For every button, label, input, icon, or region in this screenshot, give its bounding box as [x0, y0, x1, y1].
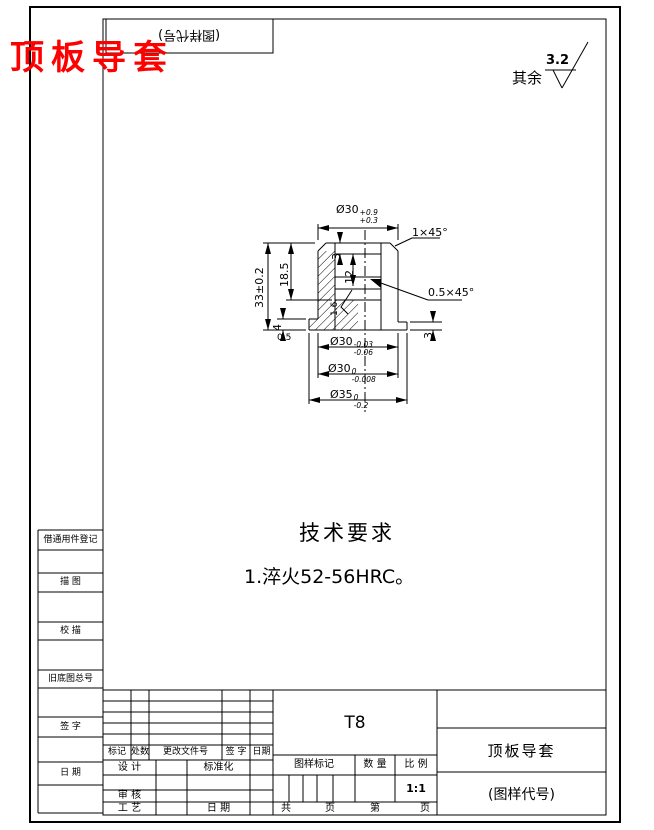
drawing-sheet: 顶板导套 (图样代号) 其余 3.2 Ø30+0.9+0.3 1×45° 0.5… [0, 0, 654, 830]
dim-od-top-base: Ø30 [336, 203, 359, 216]
dim-chamfer-groove: 0.5×45° [428, 287, 474, 298]
tb-page-label-1: 页 [320, 802, 340, 815]
tb-qty-header: 数 量 [355, 755, 395, 775]
margin-label-signature: 签 字 [38, 717, 103, 737]
tb-drawing-code: (图样代号) [437, 772, 606, 815]
dim-relief: 0.5 [277, 334, 291, 343]
part-view [309, 230, 407, 412]
tech-req-title: 技术要求 [299, 517, 395, 547]
tb-no-label: 第 [365, 802, 385, 815]
margin-label-old-master-no: 旧底图总号 [38, 670, 103, 688]
tb-mark-header: 图样标记 [273, 755, 355, 775]
dim-right-step: 3 [423, 332, 434, 339]
tb-col-change-doc-no: 更改文件号 [149, 745, 222, 760]
dim-total-height: 33±0.2 [254, 267, 265, 308]
dim-od-top: Ø30+0.9+0.3 [336, 204, 378, 225]
margin-label-tracing-check: 校 描 [38, 622, 103, 640]
tb-audit: 审 核 [103, 789, 156, 802]
tb-part-name: 顶板导套 [437, 728, 606, 772]
margin-label-tracing: 描 图 [38, 573, 103, 592]
dim-od-flange-base: Ø35 [330, 388, 353, 401]
tb-col-count: 处数 [131, 745, 149, 760]
rotated-code-text: (图样代号) [158, 27, 220, 46]
tech-req-item-1: 1.淬火52-56HRC。 [244, 562, 414, 589]
surface-note-prefix: 其余 [512, 67, 542, 88]
tb-col-mark: 标记 [103, 745, 131, 760]
tb-process: 工 艺 [103, 802, 156, 815]
dim-od-low: Ø300-0.008 [328, 363, 376, 384]
tb-col-date: 日期 [250, 745, 273, 760]
dim-upper-height: 18.5 [279, 263, 290, 288]
margin-label-borrow-record: 借通用件登记 [38, 530, 103, 550]
top-code-box: (图样代号) [106, 19, 273, 53]
dim-od-flange: Ø350-0.2 [330, 389, 368, 410]
tb-design: 设 计 [103, 760, 156, 775]
margin-label-date: 日 期 [38, 762, 103, 785]
dim-od-low-base: Ø30 [328, 362, 351, 375]
dim-counterbore-depth: 3 [331, 253, 342, 260]
tb-scale-value: 1:1 [395, 775, 437, 802]
tb-total-label: 共 [276, 802, 296, 815]
dim-od-low-sub: -0.008 [352, 376, 376, 384]
dim-groove-depth: 12 [344, 270, 355, 284]
surface-note-value: 3.2 [546, 53, 569, 68]
dim-bore-roughness: 1.6 [331, 302, 340, 316]
dim-flange-height: 4 [272, 324, 283, 331]
dim-od-mid-sub: -0.06 [354, 349, 373, 357]
dim-od-flange-sub: -0.2 [354, 402, 369, 410]
tb-page-label-2: 页 [415, 802, 435, 815]
tb-col-signature: 签 字 [222, 745, 250, 760]
tb-standardization: 标准化 [187, 760, 250, 775]
tb-date: 日 期 [187, 802, 250, 815]
dim-od-mid: Ø30-0.03-0.06 [330, 336, 373, 357]
tb-scale-header: 比 例 [395, 755, 437, 775]
dim-chamfer-top: 1×45° [412, 227, 448, 238]
dim-od-mid-base: Ø30 [330, 335, 353, 348]
tb-material: T8 [273, 690, 437, 755]
dim-od-top-sub: +0.3 [360, 217, 378, 225]
